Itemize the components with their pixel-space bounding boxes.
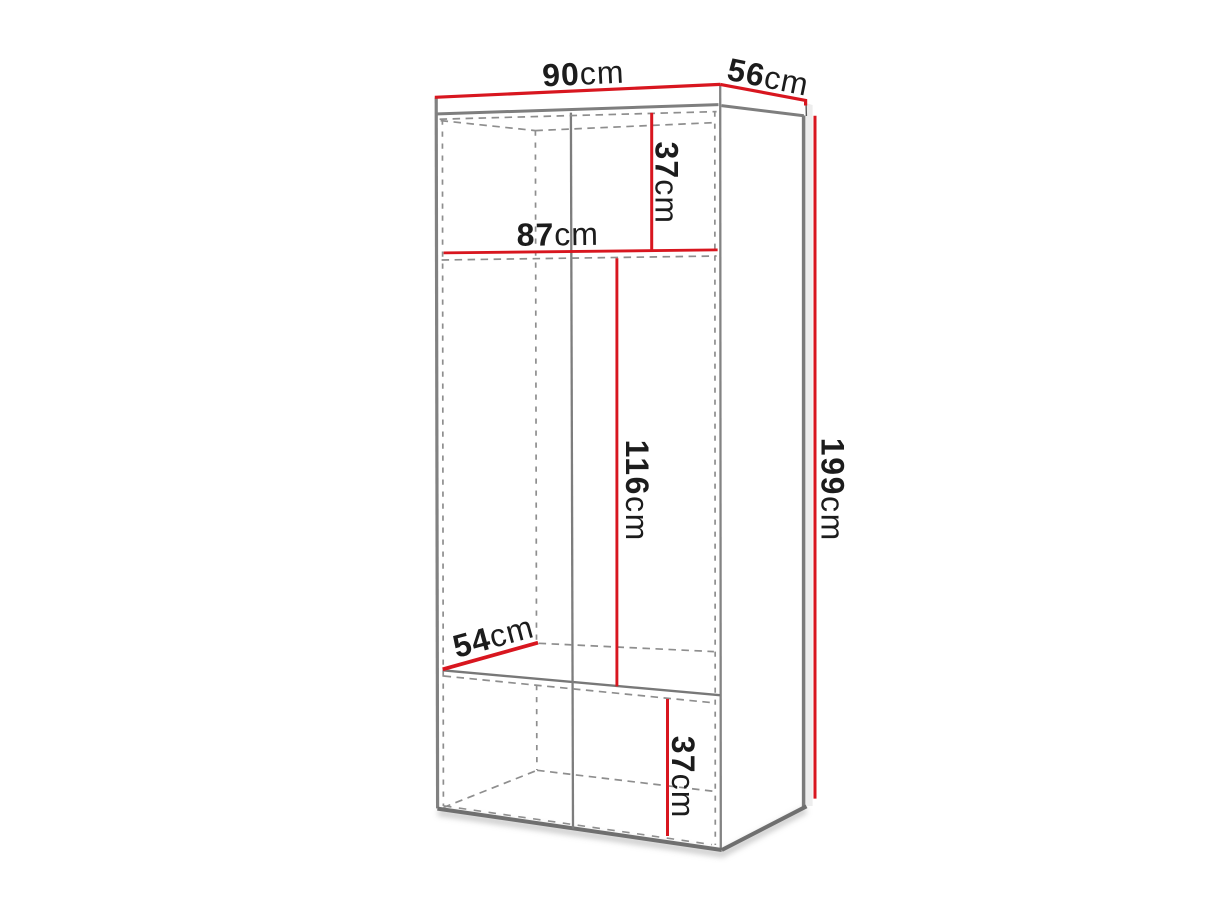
svg-text:116cm: 116cm bbox=[619, 440, 655, 542]
svg-text:37cm: 37cm bbox=[649, 142, 685, 225]
svg-text:90cm: 90cm bbox=[541, 54, 625, 94]
svg-text:56cm: 56cm bbox=[724, 51, 812, 103]
svg-text:199cm: 199cm bbox=[815, 438, 851, 542]
svg-text:87cm: 87cm bbox=[516, 216, 599, 253]
svg-text:37cm: 37cm bbox=[665, 736, 701, 819]
